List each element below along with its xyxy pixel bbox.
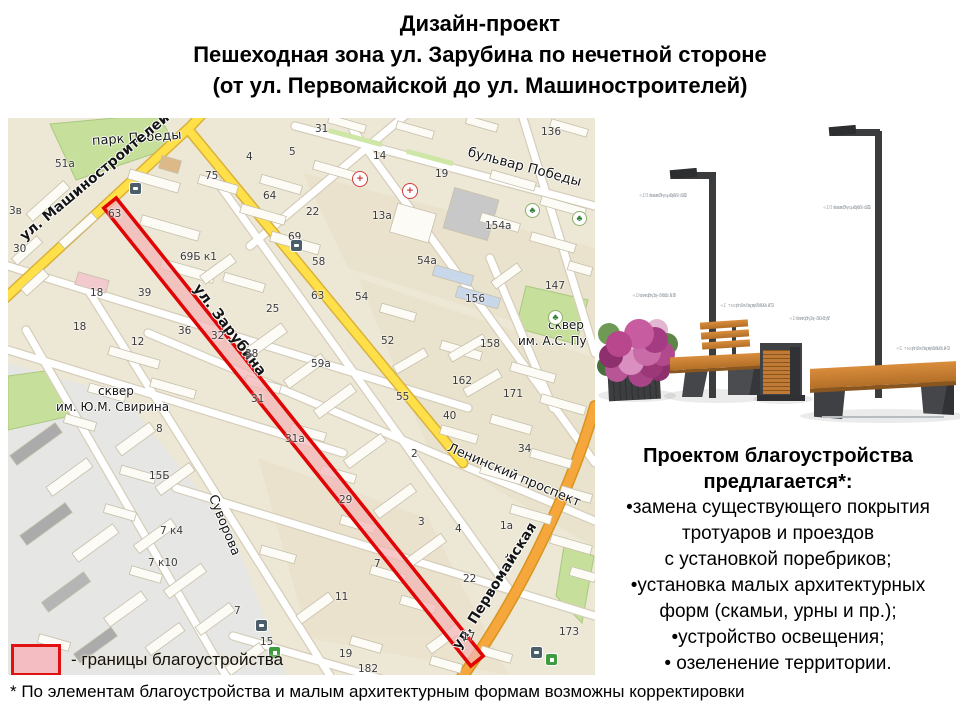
tree-icon: ♣ (572, 211, 587, 226)
house-number: 51a (55, 158, 75, 170)
house-number: 63 (108, 208, 121, 220)
house-number: 7 (374, 558, 381, 570)
house-number: 19 (435, 168, 448, 180)
house-number: 58 (312, 256, 325, 268)
street-label: им. А.С. Пу (518, 334, 587, 348)
house-number: 182 (358, 663, 378, 675)
house-number: 17 (462, 631, 475, 643)
house-number: 5 (289, 146, 296, 158)
house-number: 7 к4 (160, 525, 183, 537)
house-number: 12 (131, 336, 144, 348)
house-number: 1a (500, 520, 513, 532)
house-number: 2 (411, 448, 418, 460)
footnote: * По элементам благоустройства и малым а… (10, 682, 744, 702)
house-number: 25 (266, 303, 279, 315)
bus-icon (290, 239, 303, 252)
house-number: 154a (485, 220, 511, 232)
house-number: 18 (73, 321, 86, 333)
bench1-back-slat (700, 319, 748, 329)
trash-urn-wood-front (763, 350, 790, 394)
house-number: 38 (245, 348, 258, 360)
house-number: 3 (418, 516, 425, 528)
planter-box (607, 361, 661, 402)
street-label: им. Ю.М. Свирина (56, 400, 169, 414)
house-number: 75 (205, 170, 218, 182)
city-map: парк Победыул. Машиностроителейбульвар П… (8, 118, 595, 675)
house-number: 55 (396, 391, 409, 403)
title-line-3: (от ул. Первомайской до ул. Машиностроит… (0, 70, 960, 101)
street-label: сквер (98, 384, 134, 398)
fuel-icon (545, 653, 558, 666)
house-number: 3в (9, 205, 22, 217)
house-number: 30 (13, 243, 26, 255)
slide-title: Дизайн-проект Пешеходная зона ул. Заруби… (0, 8, 960, 101)
proposal-heading: предлагается*: (602, 469, 954, 495)
proposal-line: •устройство освещения; (602, 625, 954, 651)
house-number: 173 (559, 626, 579, 638)
house-number: 147 (545, 280, 565, 292)
house-number: 63 (311, 290, 324, 302)
house-number: 54a (417, 255, 437, 267)
house-number: 32 (211, 330, 224, 342)
house-number: 40 (443, 410, 456, 422)
pharmacy-icon: + (352, 171, 368, 187)
house-number: 18 (90, 287, 103, 299)
house-number: 11 (335, 591, 348, 603)
house-number: 14 (373, 150, 386, 162)
house-number: 34 (518, 443, 531, 455)
house-number: 39 (138, 287, 151, 299)
tree-icon: ♣ (525, 203, 540, 218)
house-number: 29 (339, 494, 352, 506)
house-number: 22 (306, 206, 319, 218)
hospital-icon: + (402, 183, 418, 199)
proposal-line: • озеленение территории. (602, 651, 954, 677)
bus-icon (129, 182, 142, 195)
legend-label: - границы благоустройства (71, 650, 283, 670)
proposal-line: •замена существующего покрытия (602, 495, 954, 521)
trash-urn-side (790, 347, 800, 395)
map-legend: - границы благоустройства (11, 644, 283, 675)
proposal-heading: Проектом благоустройства (602, 443, 954, 469)
title-line-2: Пешеходная зона ул. Зарубина по нечетной… (0, 39, 960, 70)
trash-urn-plinth (757, 395, 805, 401)
proposal-line: •установка малых архитектурных (602, 573, 954, 599)
proposal-list: •замена существующего покрытиятротуаров … (602, 495, 954, 677)
legend-color-swatch (11, 644, 61, 675)
house-number: 36 (178, 325, 191, 337)
house-number: 13a (372, 210, 392, 222)
bench2-runner (822, 413, 944, 418)
house-number: 19 (339, 648, 352, 660)
house-number: 156 (465, 293, 485, 305)
house-number: 15Б (149, 470, 170, 482)
house-number: 31 (315, 123, 328, 135)
house-number: 162 (452, 375, 472, 387)
proposal-line: с установкой поребриков; (602, 547, 954, 573)
proposal-text: Проектом благоустройства предлагается*: … (602, 443, 954, 677)
house-number: 4 (246, 151, 253, 163)
house-number: 64 (263, 190, 276, 202)
tree-icon: ♣ (548, 310, 563, 325)
proposal-line: форм (скамьи, урны и пр.); (602, 599, 954, 625)
proposal-line: тротуаров и проездов (602, 521, 954, 547)
house-number: 52 (381, 335, 394, 347)
house-number: 4 (455, 523, 462, 535)
street-furniture-render: Фонарь «Свая 01»22 700 рублейФонарь «Сва… (600, 117, 960, 440)
light-pole-2 (875, 131, 882, 398)
house-number: 136 (541, 126, 561, 138)
planter-flowers (630, 329, 644, 343)
house-number: 31a (285, 433, 305, 445)
title-line-1: Дизайн-проект (0, 8, 960, 39)
house-number: 59a (311, 358, 331, 370)
house-number: 8 (156, 423, 163, 435)
house-number: 54 (355, 291, 368, 303)
house-number: 7 к10 (148, 557, 178, 569)
house-number: 31 (251, 393, 264, 405)
house-number: 69Б к1 (180, 251, 217, 263)
bus-icon (530, 646, 543, 659)
bus-icon (255, 619, 268, 632)
house-number: 7 (234, 605, 241, 617)
house-number: 171 (503, 388, 523, 400)
house-number: 22 (463, 573, 476, 585)
house-number: 158 (480, 338, 500, 350)
